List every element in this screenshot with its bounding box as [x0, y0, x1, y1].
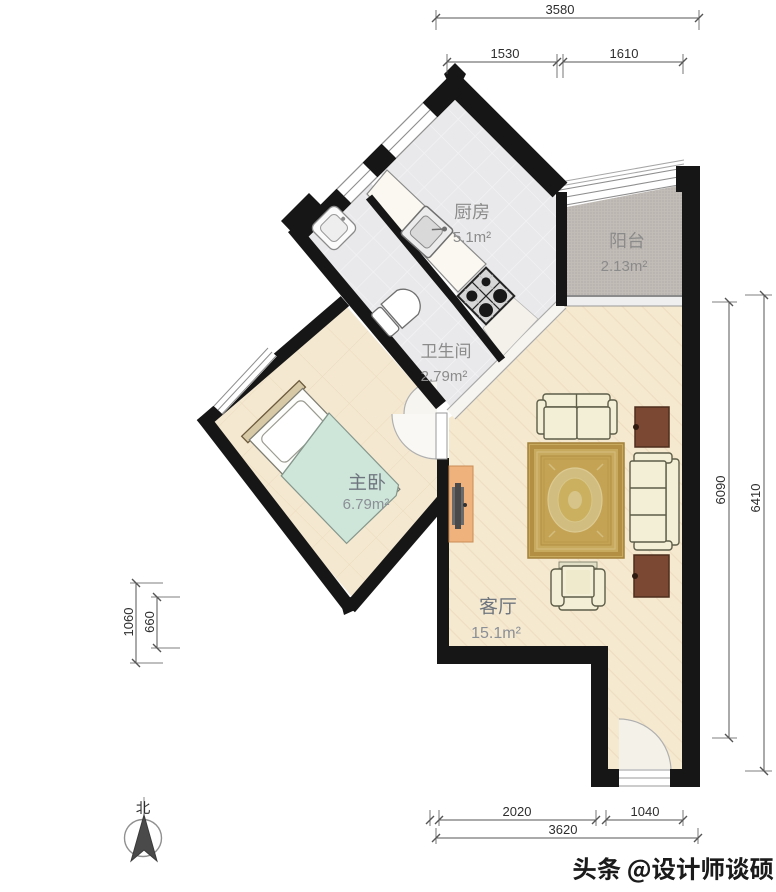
svg-text:6410: 6410 — [748, 484, 763, 513]
svg-text:1530: 1530 — [491, 46, 520, 61]
svg-text:2.13m²: 2.13m² — [601, 258, 648, 275]
svg-text:660: 660 — [142, 611, 157, 633]
svg-text:15.1m²: 15.1m² — [471, 625, 521, 642]
svg-text:3580: 3580 — [546, 2, 575, 17]
svg-text:6090: 6090 — [713, 476, 728, 505]
svg-text:2.79m²: 2.79m² — [421, 368, 468, 385]
svg-text:3620: 3620 — [549, 822, 578, 837]
svg-text:2020: 2020 — [503, 804, 532, 819]
svg-text:6.79m²: 6.79m² — [343, 496, 390, 513]
svg-text:5.1m²: 5.1m² — [453, 229, 491, 246]
svg-text:1610: 1610 — [610, 46, 639, 61]
svg-text:1060: 1060 — [121, 608, 136, 637]
svg-text:1040: 1040 — [631, 804, 660, 819]
